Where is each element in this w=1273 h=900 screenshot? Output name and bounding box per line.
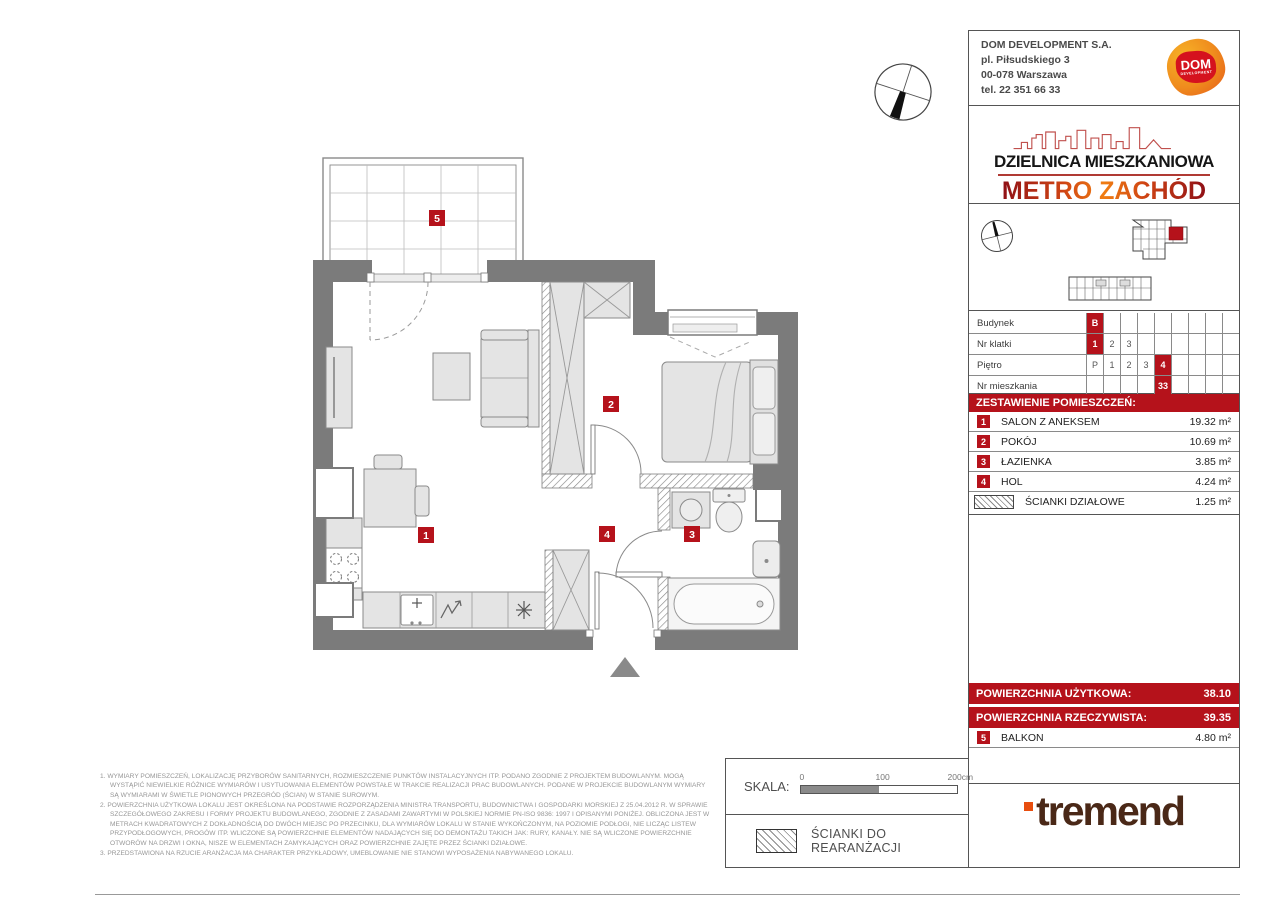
cell <box>1103 313 1120 333</box>
room-area: 19.32 m² <box>1190 416 1231 428</box>
footnote-1: 1. WYMIARY POMIESZCZEŃ, LOKALIZACJĘ PRZY… <box>100 772 712 800</box>
cell <box>1171 313 1188 333</box>
compass-icon <box>868 60 939 127</box>
plan-label-pokoj: 2 <box>608 399 614 411</box>
room-badge: 2 <box>977 435 990 448</box>
room-name: BALKON <box>1001 732 1044 744</box>
logo-text-development: DEVELOPMENT <box>1180 70 1212 77</box>
window-left-upper <box>315 468 353 518</box>
room-row-hol: 4 HOL 4.24 m² <box>969 472 1239 492</box>
cell: P <box>1086 355 1103 375</box>
room-row-pokoj: 2 POKÓJ 10.69 m² <box>969 432 1239 452</box>
fridge-snowflake-icon <box>516 601 532 619</box>
room-badge: 3 <box>977 455 990 468</box>
panel-spacer <box>969 747 1239 783</box>
cell <box>1188 334 1205 354</box>
plan-label-hol: 4 <box>604 529 610 541</box>
cell <box>1205 334 1222 354</box>
bathroom <box>616 489 782 630</box>
bedroom <box>591 310 778 474</box>
developer-address-1: pl. Piłsudskiego 3 <box>981 53 1112 68</box>
developer-address-2: 00-078 Warszawa <box>981 68 1112 83</box>
cell <box>1171 334 1188 354</box>
cell <box>1222 334 1239 354</box>
bed <box>662 362 752 462</box>
room-list-section: ZESTAWIENIE POMIESZCZEŃ: 1 SALON Z ANEKS… <box>969 394 1239 515</box>
footnote-3: 3. PRZEDSTAWIONA NA RZUCIE ARANŻACJA MA … <box>100 849 712 858</box>
footnote-2: 2. POWIERZCHNIA UŻYTKOWA LOKALU JEST OKR… <box>100 801 712 848</box>
row-label: Piętro <box>969 355 1086 375</box>
cell <box>1222 313 1239 333</box>
room-area: 4.24 m² <box>1195 476 1231 488</box>
room-name: HOL <box>1001 476 1023 488</box>
plan-label-balkon: 5 <box>434 213 440 225</box>
page-bottom-rule <box>95 894 1240 895</box>
usable-area-bar: POWIERZCHNIA UŻYTKOWA: 38.10 <box>969 683 1239 704</box>
floor-plan-drawing: 1 2 3 4 5 <box>280 60 970 700</box>
skyline-icon <box>997 112 1211 152</box>
kitchen <box>315 468 545 628</box>
scale-tick-200: 200cm <box>948 772 974 782</box>
cell: 3 <box>1120 334 1137 354</box>
cell <box>1137 376 1154 396</box>
tremend-logo-section: tremend <box>969 783 1239 838</box>
district-title: DZIELNICA MIESZKANIOWA <box>969 152 1239 172</box>
cell <box>1222 376 1239 396</box>
tremend-logo: tremend <box>1024 793 1184 830</box>
siteplan-compass-icon <box>977 216 1017 256</box>
shaft <box>756 489 782 521</box>
cell: 1 <box>1086 334 1103 354</box>
panel-spacer <box>969 515 1239 683</box>
room-name: ŁAZIENKA <box>1001 456 1052 468</box>
cell: 3 <box>1137 355 1154 375</box>
cell <box>1188 313 1205 333</box>
living-room-furniture <box>326 330 539 527</box>
scale-row: SKALA: 0 100 200cm <box>726 759 968 815</box>
room-name: ŚCIANKI DZIAŁOWE <box>1025 496 1125 508</box>
cell: 4 <box>1154 355 1171 375</box>
row-label: Nr klatki <box>969 334 1086 354</box>
developer-phone: tel. 22 351 66 33 <box>981 83 1112 98</box>
tremend-dot-icon <box>1024 802 1033 811</box>
plan-label-salon: 1 <box>423 530 429 542</box>
tremend-wordmark: tremend <box>1036 793 1184 830</box>
pillow <box>753 413 775 455</box>
room-area: 10.69 m² <box>1190 436 1231 448</box>
cell <box>1171 376 1188 396</box>
cell <box>1154 313 1171 333</box>
cell <box>1137 313 1154 333</box>
scale-bar: 0 100 200cm <box>800 772 960 802</box>
room-name: SALON Z ANEKSEM <box>1001 416 1100 428</box>
cell <box>1188 376 1205 396</box>
legend-row: ŚCIANKI DO REARANŻACJI <box>726 815 968 867</box>
bedroom-door <box>591 425 595 474</box>
scale-tick-100: 100 <box>876 772 890 782</box>
row-label: Nr mieszkania <box>969 376 1086 396</box>
building-plan-bottom <box>1066 272 1154 306</box>
info-panel: DOM DEVELOPMENT S.A. pl. Piłsudskiego 3 … <box>968 30 1240 868</box>
cell <box>1205 376 1222 396</box>
room-name: POKÓJ <box>1001 436 1037 448</box>
cell <box>1205 313 1222 333</box>
developer-name: DOM DEVELOPMENT S.A. <box>981 38 1112 53</box>
wardrobes <box>550 282 630 630</box>
table-row-pietro: Piętro P 1 2 3 4 <box>969 355 1239 376</box>
plan-label-lazienka: 3 <box>689 529 695 541</box>
footnotes: 1. WYMIARY POMIESZCZEŃ, LOKALIZACJĘ PRZY… <box>100 772 712 859</box>
cell <box>1120 313 1137 333</box>
usable-area-label: POWIERZCHNIA UŻYTKOWA: <box>969 688 1131 700</box>
room-area: 4.80 m² <box>1195 732 1231 744</box>
cell: 2 <box>1103 334 1120 354</box>
area-summary-section: POWIERZCHNIA UŻYTKOWA: 38.10 POWIERZCHNI… <box>969 683 1239 747</box>
cell: 1 <box>1103 355 1120 375</box>
rearrangement-hatch-icon <box>756 829 797 853</box>
actual-area-bar: POWIERZCHNIA RZECZYWISTA: 39.35 <box>969 707 1239 728</box>
brand-divider <box>998 174 1210 176</box>
row-label: Budynek <box>969 313 1086 333</box>
cell <box>1222 355 1239 375</box>
room-badge: 1 <box>977 415 990 428</box>
balcony-row: 5 BALKON 4.80 m² <box>969 728 1239 748</box>
actual-area-value: 39.35 <box>1203 712 1239 724</box>
developer-info-section: DOM DEVELOPMENT S.A. pl. Piłsudskiego 3 … <box>969 31 1239 106</box>
building-plan-top <box>1129 217 1191 267</box>
balcony-door-threshold <box>367 273 488 340</box>
location-table-section: Budynek B Nr klatki 1 2 <box>969 311 1239 394</box>
project-brand-section: DZIELNICA MIESZKANIOWA METRO ZACHÓD <box>969 106 1239 204</box>
room-row-salon: 1 SALON Z ANEKSEM 19.32 m² <box>969 412 1239 432</box>
siteplan-section <box>969 204 1239 311</box>
cell: 33 <box>1154 376 1171 396</box>
bathroom-door <box>616 572 662 577</box>
project-title: METRO ZACHÓD <box>1002 178 1206 204</box>
room-badge: 4 <box>977 475 990 488</box>
room-area: 3.85 m² <box>1195 456 1231 468</box>
floorplan-document-page: 1 2 3 4 5 DOM DEVELOPMENT S.A. pl. Piłsu… <box>0 0 1273 900</box>
rearrangement-label: ŚCIANKI DO REARANŻACJI <box>811 827 968 855</box>
window-left-lower <box>315 583 353 617</box>
scale-label: SKALA: <box>744 779 790 794</box>
balcony <box>323 158 523 277</box>
entrance-door <box>595 572 599 629</box>
cell <box>1205 355 1222 375</box>
cell <box>1188 355 1205 375</box>
room-row-partitions: ŚCIANKI DZIAŁOWE 1.25 m² <box>969 492 1239 511</box>
cell: B <box>1086 313 1103 333</box>
cell <box>1137 334 1154 354</box>
pillow <box>753 367 775 409</box>
cell: 2 <box>1120 355 1137 375</box>
cell <box>1086 376 1103 396</box>
scale-tick-0: 0 <box>800 772 805 782</box>
table-row-budynek: Budynek B <box>969 313 1239 334</box>
table-row-mieszkanie: Nr mieszkania 33 <box>969 376 1239 396</box>
room-area: 1.25 m² <box>1195 496 1231 508</box>
actual-area-label: POWIERZCHNIA RZECZYWISTA: <box>969 712 1147 724</box>
room-badge: 5 <box>977 731 990 744</box>
highlighted-unit <box>1169 227 1183 240</box>
room-list-header: ZESTAWIENIE POMIESZCZEŃ: <box>969 394 1239 412</box>
hatch-swatch-icon <box>974 495 1014 509</box>
room-row-lazienka: 3 ŁAZIENKA 3.85 m² <box>969 452 1239 472</box>
cell <box>1120 376 1137 396</box>
entrance <box>586 572 661 677</box>
entrance-arrow-icon <box>610 657 640 677</box>
scale-and-legend-box: SKALA: 0 100 200cm ŚCIANKI DO REARANŻACJ… <box>725 758 968 868</box>
usable-area-value: 38.10 <box>1203 688 1239 700</box>
dom-development-logo: DOM DEVELOPMENT <box>1164 36 1228 98</box>
cell <box>1103 376 1120 396</box>
table-row-klatka: Nr klatki 1 2 3 <box>969 334 1239 355</box>
cell <box>1154 334 1171 354</box>
cell <box>1171 355 1188 375</box>
